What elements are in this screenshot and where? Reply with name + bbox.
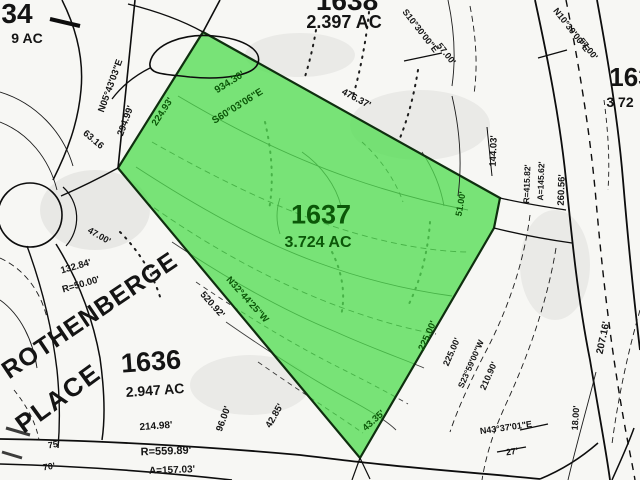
parcel-1638-acreage: 2.397 AC [306,13,381,31]
distance-label: 42.85' [264,402,285,429]
distance-label: 144.03' [489,135,500,167]
parcel-1636-acreage: 2.947 AC [125,381,184,399]
distance-label: 214.98' [139,421,173,433]
curve-label: A=157.03' [149,465,195,477]
bearing-label: S10°30'00"E [400,8,439,55]
bearing-label: N32°44'25"W [224,275,270,325]
distance-label: 57.00' [435,42,457,67]
bearing-label: N43°37'01"E [479,420,532,436]
parcel-right-number: 163 [609,64,640,90]
curve-label: R=559.89' [141,446,192,459]
distance-label: 132.84' [60,258,93,276]
distance-label: 43.35' [361,409,387,433]
distance-label: 51.00' [454,191,467,217]
distance-label: 18.00' [571,405,582,430]
plat-map: 349 AC16382.397 AC1633 72N05°43'03"E294.… [0,0,640,480]
curve-label: A=145.62' [536,161,546,200]
distance-label: 225.00' [417,320,438,352]
distance-label: 260.56' [557,174,568,206]
distance-label: 207.16' [596,321,613,355]
parcel-1637-number: 1637 [291,202,351,229]
parcel-1634-acreage: 9 AC [11,31,42,45]
distance-label: 70' [42,462,55,473]
bearing-label: N05°43'03"E [97,58,125,113]
distance-label: 96.00' [215,405,233,433]
map-labels-layer: 349 AC16382.397 AC1633 72N05°43'03"E294.… [0,0,640,480]
parcel-right-acreage: 3 72 [606,95,633,109]
curve-label: R=50.00' [61,275,101,295]
distance-label: 225.00' [442,337,462,368]
parcel-1634-number: 34 [1,0,32,28]
distance-label: 224.93' [150,96,175,127]
distance-label: 934.30' [213,70,246,96]
parcel-1637-acreage: 3.724 AC [285,235,352,251]
distance-label: 63.16 [81,129,105,152]
parcel-1636-number: 1636 [120,346,182,377]
distance-label: 294.99' [116,105,136,138]
distance-label: 210.90' [479,361,499,392]
curve-label: R=415.82' [522,164,532,203]
distance-label: 476.37' [340,87,372,110]
distance-label: 75' [47,440,60,451]
distance-label: 27' [505,447,518,458]
distance-label: 47.00' [86,226,112,246]
distance-label: 520.92' [198,290,226,320]
